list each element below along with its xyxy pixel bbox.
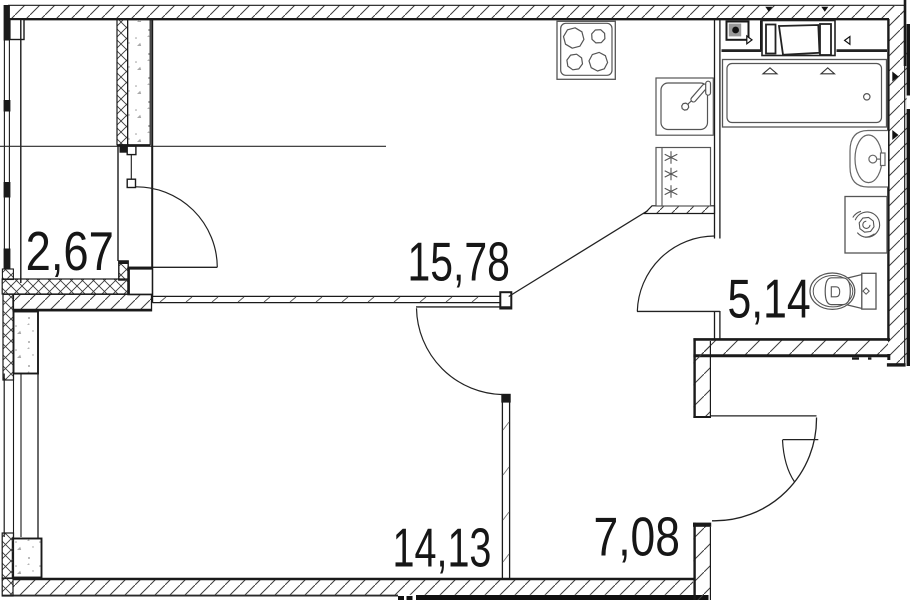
svg-text:7,08: 7,08 [594,506,680,568]
svg-text:2,67: 2,67 [26,220,114,282]
svg-text:14,13: 14,13 [393,518,492,579]
svg-text:15,78: 15,78 [408,232,510,293]
svg-text:5,14: 5,14 [728,268,811,329]
